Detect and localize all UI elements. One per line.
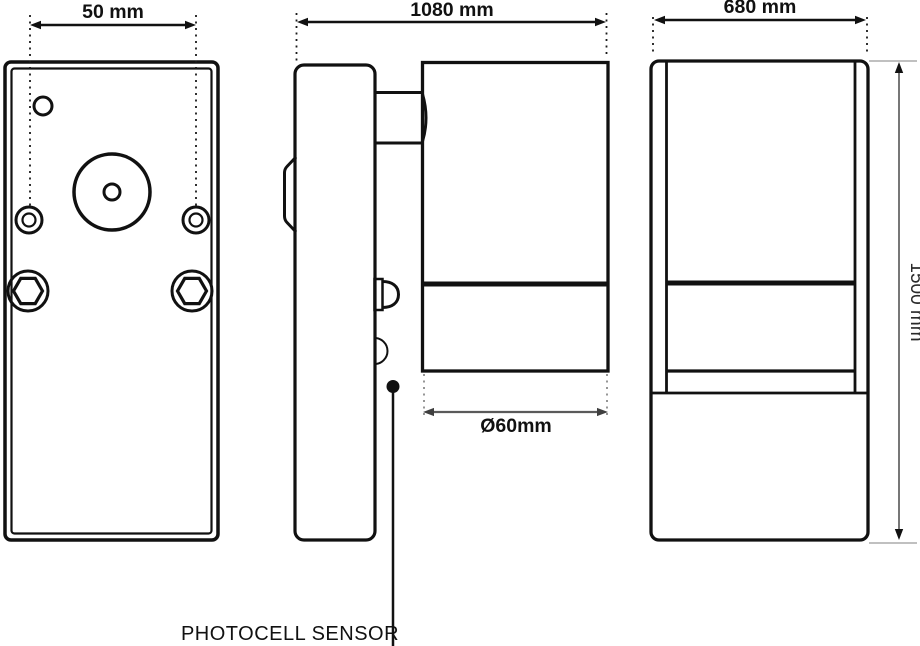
dim50-arrow-left-icon xyxy=(30,21,41,30)
photocell-knob-dome xyxy=(383,282,399,308)
dim1500-arrow-down-icon xyxy=(895,529,903,540)
dim1500-label: 1500 mm xyxy=(906,262,920,341)
lamp-head-outline xyxy=(423,63,609,372)
screw-hole-left xyxy=(16,207,42,233)
cable-entry-hole xyxy=(34,97,52,115)
back-view xyxy=(5,62,218,540)
dim50-label: 50 mm xyxy=(82,1,144,23)
dimension-1500mm: 1500 mm xyxy=(869,61,920,543)
hex-bolt-right-icon xyxy=(172,271,212,311)
dimension-680mm: 680 mm xyxy=(653,0,867,56)
dim60-label: Ø60mm xyxy=(480,415,552,437)
dim1500-arrow-up-icon xyxy=(895,62,903,73)
dim680-arrow-right-icon xyxy=(855,16,866,25)
screw-hole-right-outer xyxy=(183,207,209,233)
photocell-knob xyxy=(375,279,399,310)
dimension-1080mm: 1080 mm xyxy=(297,0,607,62)
screw-hole-left-outer xyxy=(16,207,42,233)
hex-bolt-right-head xyxy=(178,278,207,303)
photocell-sensor-label: PHOTOCELL SENSOR xyxy=(181,623,399,645)
hex-bolt-left-head xyxy=(14,278,43,303)
wall-light-dimension-diagram: 50 mm 1080 mm 680 mm Ø60mm 1500 mm xyxy=(0,0,920,646)
dimension-50mm: 50 mm xyxy=(30,1,196,207)
front-view xyxy=(651,61,868,540)
side-body-outline xyxy=(295,65,375,540)
screw-hole-right xyxy=(183,207,209,233)
dim50-arrow-right-icon xyxy=(185,21,196,30)
dim1080-label: 1080 mm xyxy=(410,0,493,21)
dim1080-arrow-right-icon xyxy=(595,18,606,27)
center-knockout-circle xyxy=(74,154,150,230)
side-view xyxy=(285,63,609,646)
dim1080-arrow-left-icon xyxy=(297,18,308,27)
screw-hole-left-inner xyxy=(23,214,36,227)
front-body-outline xyxy=(651,61,868,540)
dim680-label: 680 mm xyxy=(724,0,797,18)
photocell-knob-flange xyxy=(375,279,383,310)
center-pilot-hole xyxy=(104,184,120,200)
dim680-arrow-left-icon xyxy=(654,16,665,25)
screw-hole-right-inner xyxy=(190,214,203,227)
dimension-60mm-diameter: Ø60mm xyxy=(423,374,608,437)
technical-drawing-page: 50 mm 1080 mm 680 mm Ø60mm 1500 mm xyxy=(0,0,920,646)
hex-bolt-left-icon xyxy=(8,271,48,311)
